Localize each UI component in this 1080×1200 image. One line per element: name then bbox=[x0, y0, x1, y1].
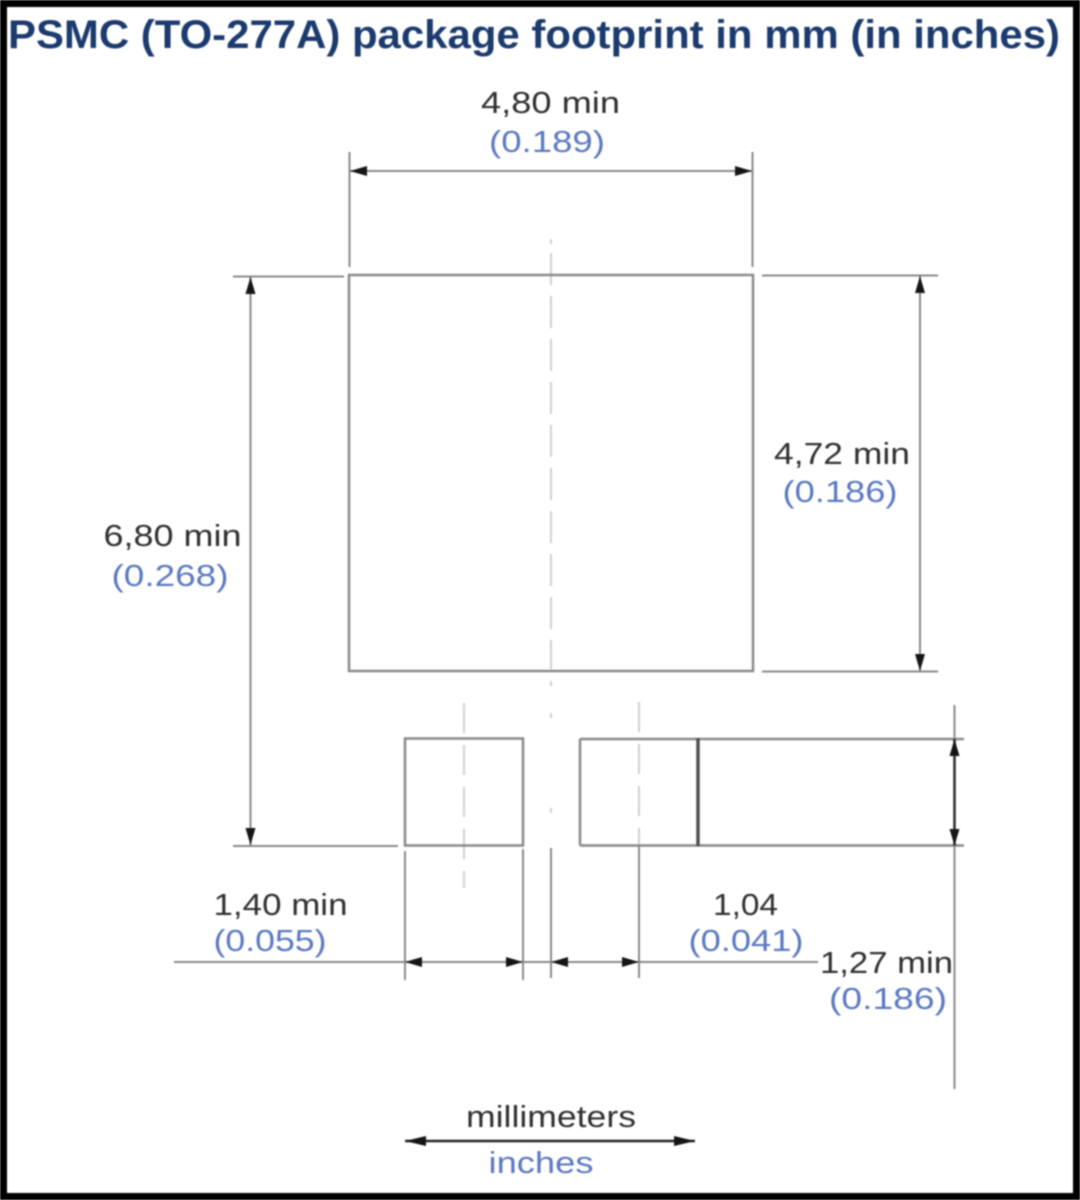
svg-text:(0.268): (0.268) bbox=[112, 558, 229, 593]
svg-text:(0.055): (0.055) bbox=[214, 923, 327, 958]
svg-text:1,27 min: 1,27 min bbox=[820, 945, 953, 980]
svg-text:inches: inches bbox=[489, 1145, 594, 1180]
svg-text:(0.041): (0.041) bbox=[689, 923, 804, 958]
svg-text:4,72 min: 4,72 min bbox=[774, 436, 910, 471]
svg-text:(0.186): (0.186) bbox=[783, 474, 898, 509]
svg-text:1,04: 1,04 bbox=[713, 887, 778, 922]
svg-text:PSMC (TO-277A) package footpri: PSMC (TO-277A) package footprint in mm (… bbox=[8, 13, 1060, 57]
svg-text:6,80 min: 6,80 min bbox=[104, 518, 242, 553]
svg-text:(0.189): (0.189) bbox=[489, 124, 605, 159]
svg-text:4,80 min: 4,80 min bbox=[481, 85, 620, 120]
svg-text:millimeters: millimeters bbox=[466, 1099, 636, 1134]
svg-text:(0.186): (0.186) bbox=[829, 981, 947, 1016]
svg-text:1,40 min: 1,40 min bbox=[214, 887, 348, 922]
